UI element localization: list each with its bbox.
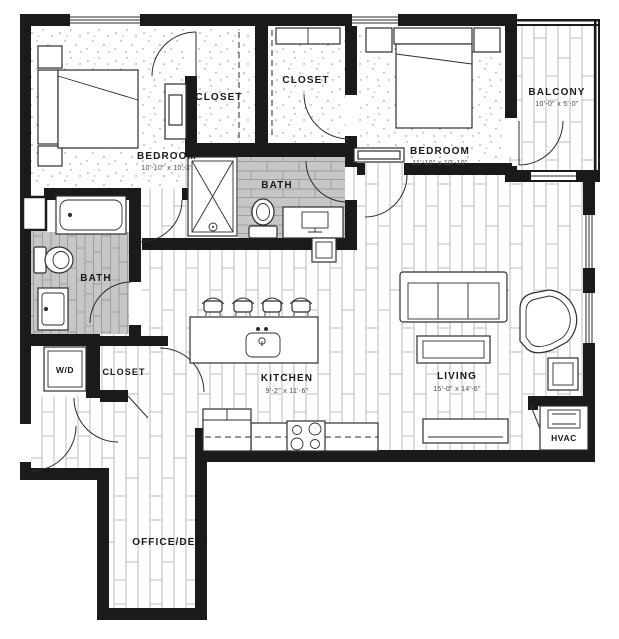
linen-niche	[23, 197, 46, 230]
wall-bottom	[195, 450, 595, 462]
dims-bedroom-2: 11'-10" x 10'-10"	[412, 160, 468, 167]
label-hvac: HVAC	[551, 433, 577, 443]
dims-kitchen: 9'-2" x 11'-6"	[266, 388, 309, 395]
side-table-icon	[548, 358, 578, 390]
coffee-table-icon	[417, 336, 490, 363]
sofa-icon	[400, 272, 507, 322]
dims-living: 15'-0" x 14'-6"	[433, 386, 481, 393]
window-balcony-wall	[531, 172, 576, 180]
dresser-1-icon	[165, 84, 186, 139]
floor-plan-svg: BEDROOM 10'-10" x 10'-3" CLOSET CLOSET B…	[0, 0, 619, 639]
label-bath-2: BATH	[80, 273, 111, 284]
wall-bedroom2-south-stub	[357, 163, 365, 175]
label-bedroom-2: BEDROOM	[410, 146, 470, 157]
label-closet-1: CLOSET	[195, 92, 242, 103]
wall-hall-bath2-upper	[129, 188, 141, 282]
window-living-2	[583, 293, 595, 343]
wall-hvac-left-stub	[528, 396, 538, 410]
range-icon	[287, 421, 325, 451]
label-bath-main: BATH	[261, 180, 292, 191]
vanity-main-icon	[283, 207, 343, 238]
wall-closet2-bedroom2	[345, 14, 357, 95]
dims-balcony: 10'-0" x 5'-0"	[535, 101, 579, 108]
bathtub-icon	[56, 196, 126, 234]
floor-closet-1	[197, 26, 255, 143]
bedroom2-bench-icon	[354, 148, 404, 162]
wall-office-bottom	[97, 608, 207, 620]
wall-closet3-top	[100, 336, 168, 346]
wall-entry-step	[20, 468, 109, 480]
label-living: LIVING	[437, 371, 477, 382]
vanity-2-icon	[38, 288, 68, 330]
label-closet-2: CLOSET	[282, 75, 329, 86]
wall-office-left	[97, 480, 109, 620]
toilet-main-icon	[249, 199, 277, 238]
window-living-1	[583, 215, 595, 268]
wall-closet3-bottom-stub	[100, 390, 128, 402]
kitchen-island-icon	[190, 317, 318, 363]
wall-mid-band	[185, 143, 357, 157]
window-bedroom2	[352, 14, 398, 26]
label-kitchen: KITCHEN	[261, 373, 313, 384]
toilet-2-icon	[34, 247, 73, 273]
wall-bedroom1-closet1	[185, 76, 197, 143]
wall-hvac-top	[528, 396, 595, 406]
label-closet-3: CLOSET	[102, 367, 145, 377]
wall-closet1-closet2	[255, 26, 268, 157]
label-balcony: BALCONY	[528, 87, 585, 98]
shower-icon	[188, 157, 237, 236]
label-wd: W/D	[56, 365, 74, 375]
window-bedroom1	[70, 14, 140, 26]
label-bedroom-1: BEDROOM	[137, 151, 197, 162]
dims-bedroom-1: 10'-10" x 10'-3"	[141, 165, 193, 172]
wall-bath-east-stub2	[345, 200, 357, 238]
label-office-den: OFFICE/DEN	[132, 537, 204, 548]
floor-plan: BEDROOM 10'-10" x 10'-3" CLOSET CLOSET B…	[0, 0, 619, 639]
media-console-icon	[423, 419, 508, 443]
floor-balcony	[512, 24, 596, 172]
wall-wd-closet3	[86, 334, 100, 398]
hvac-unit-icon	[540, 406, 588, 450]
closet2-shelf	[276, 28, 340, 44]
end-table-icon	[312, 238, 336, 262]
wall-bedroom2-right-upper	[505, 14, 517, 118]
